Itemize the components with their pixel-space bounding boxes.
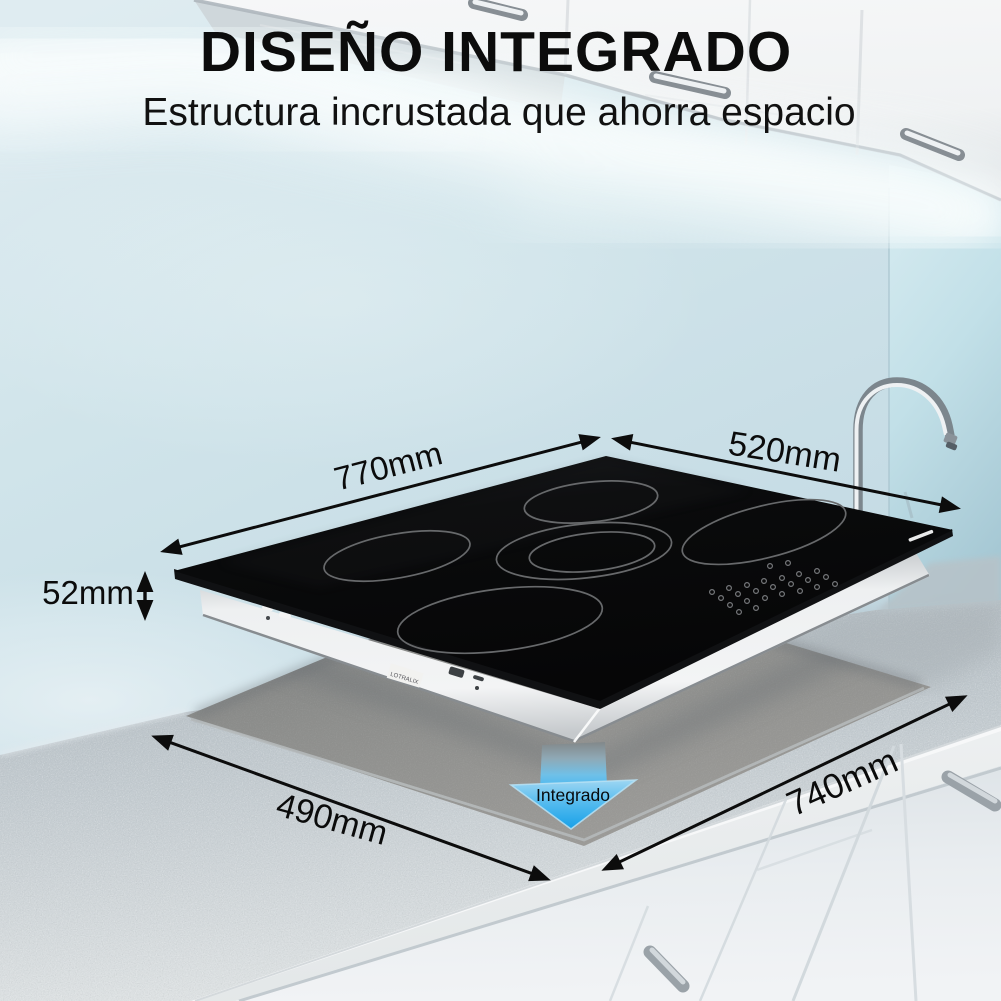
svg-text:DISEÑO INTEGRADO: DISEÑO INTEGRADO (200, 20, 792, 84)
svg-text:52mm: 52mm (42, 574, 134, 611)
svg-text:Estructura incrustada que ahor: Estructura incrustada que ahorra espacio (142, 91, 855, 134)
svg-text:Integrado: Integrado (536, 785, 610, 805)
